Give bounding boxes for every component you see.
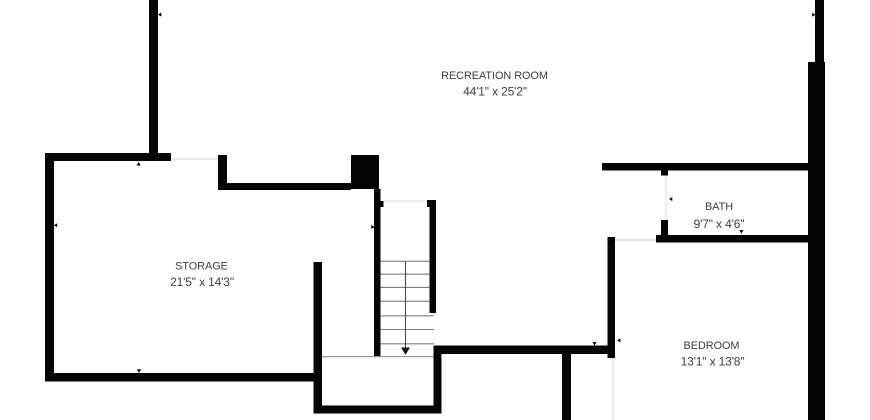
svg-text:RECREATION ROOM: RECREATION ROOM [441,70,548,82]
svg-text:BATH: BATH [705,201,733,213]
svg-text:9'7" x 4'6": 9'7" x 4'6" [694,217,745,231]
svg-text:21'5" x 14'3": 21'5" x 14'3" [170,275,234,289]
svg-text:13'1" x 13'8": 13'1" x 13'8" [681,354,745,368]
svg-text:STORAGE: STORAGE [175,261,228,273]
svg-text:44'1" x 25'2": 44'1" x 25'2" [463,85,527,99]
svg-text:BEDROOM: BEDROOM [684,340,740,352]
